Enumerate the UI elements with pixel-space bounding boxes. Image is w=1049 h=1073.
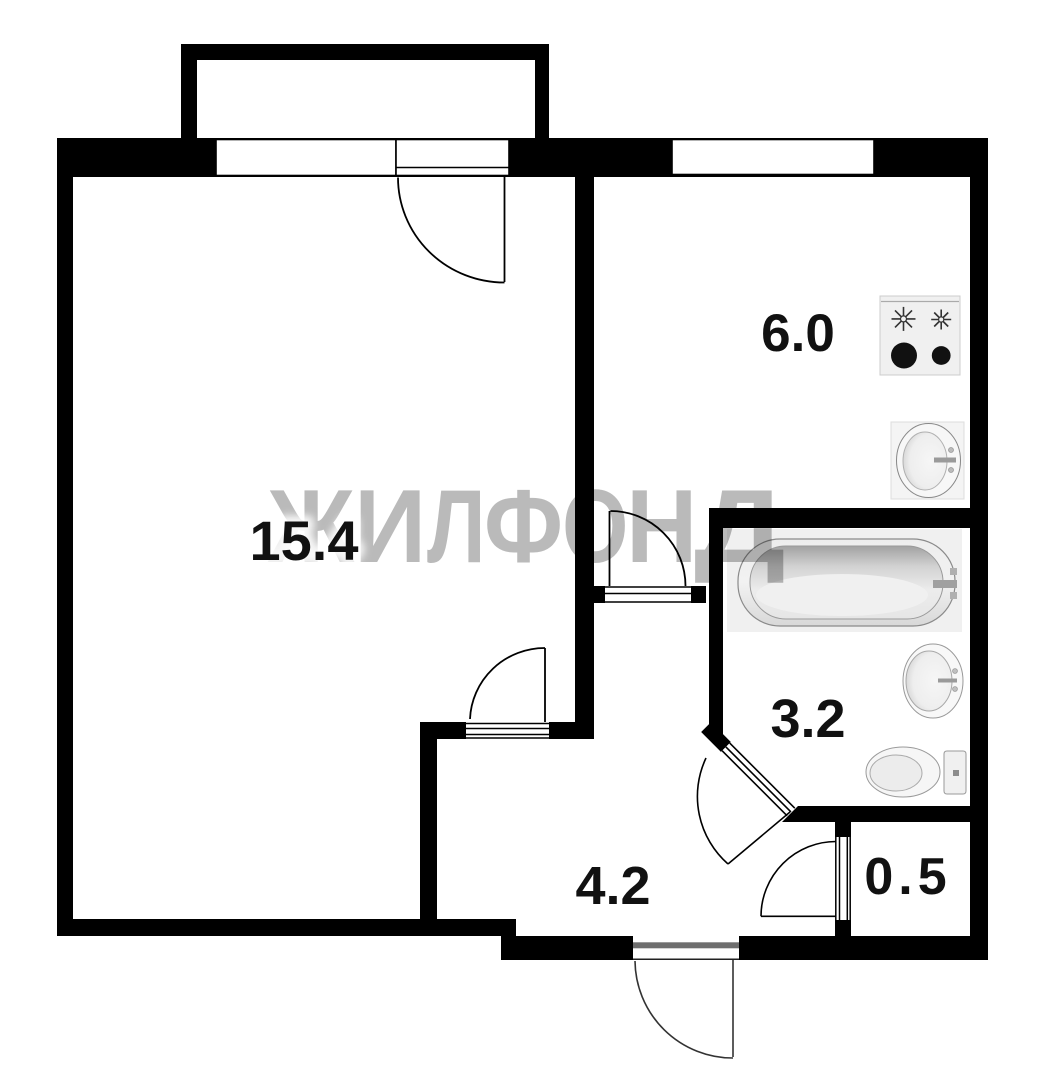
svg-text:3.2: 3.2 xyxy=(770,689,845,749)
svg-text:4.2: 4.2 xyxy=(575,856,650,916)
svg-text:Ф: Ф xyxy=(484,469,563,585)
svg-text:Л: Л xyxy=(427,469,486,585)
svg-text:15.4: 15.4 xyxy=(250,509,359,572)
svg-text:О: О xyxy=(562,469,629,585)
svg-text:Н: Н xyxy=(626,469,697,585)
svg-text:6.0: 6.0 xyxy=(761,304,835,363)
svg-text:И: И xyxy=(354,469,426,585)
svg-text:0.5: 0.5 xyxy=(864,848,951,906)
